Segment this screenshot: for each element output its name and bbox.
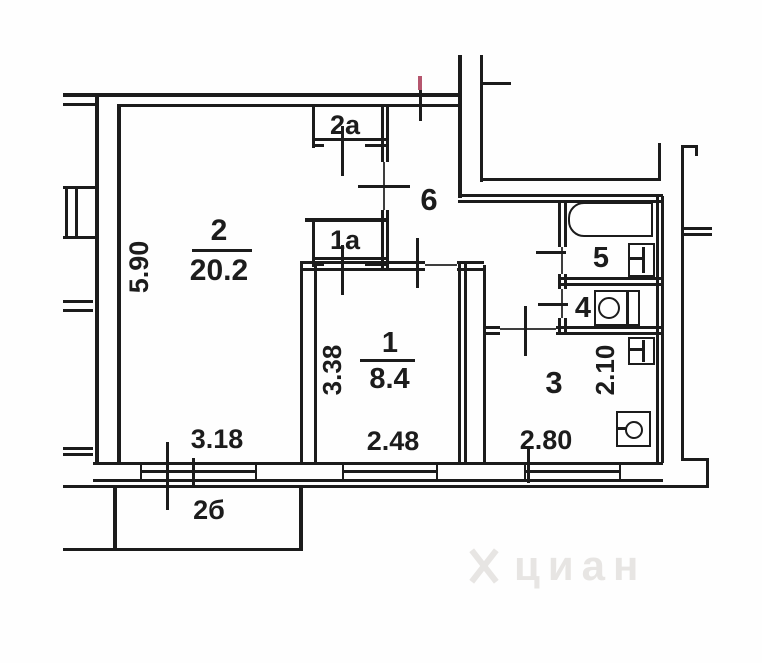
neighbor-wall <box>681 458 709 461</box>
room1-area: 8.4 <box>362 365 417 394</box>
cian-logo-icon <box>464 545 504 587</box>
dimension-tick <box>483 82 511 85</box>
sink-icon <box>630 257 642 260</box>
dim-room3-height: 2.10 <box>592 330 620 410</box>
area-divider <box>192 249 252 252</box>
window-symbol <box>436 462 438 482</box>
wall-room1-top <box>300 261 425 264</box>
facade-line <box>63 485 709 488</box>
room2a-number: 2а <box>320 112 370 139</box>
facade-tick <box>63 300 93 303</box>
facade-tick <box>63 309 93 312</box>
neighbor-wall <box>681 145 684 461</box>
dim-room3-width: 2.80 <box>511 427 581 454</box>
wall-top-inner <box>117 104 462 107</box>
area-divider <box>360 359 415 362</box>
dim-room1-height: 3.38 <box>319 330 347 410</box>
wall-room1-left <box>300 263 303 463</box>
door-tick <box>524 306 527 356</box>
room5-number: 5 <box>587 244 615 273</box>
sink-icon <box>642 340 645 362</box>
dimension-tick <box>192 458 195 488</box>
window-symbol <box>619 462 621 482</box>
entry-door-tick <box>419 88 422 121</box>
facade-tick <box>681 227 712 230</box>
closet-1a-wall <box>312 257 386 260</box>
wall-top-outer <box>63 93 462 97</box>
neighbor-wall <box>695 145 698 156</box>
wall-bath-left <box>558 200 561 247</box>
wall-bath-wc <box>558 283 663 286</box>
closet-2a-wall <box>365 144 386 147</box>
room2-number: 2 <box>195 216 243 246</box>
room1-number: 1 <box>372 329 408 358</box>
closet-2a-wall <box>312 107 315 148</box>
toilet-icon <box>626 292 629 324</box>
door-opening <box>425 264 457 266</box>
dimension-tick <box>166 442 169 510</box>
balcony-number: 2б <box>183 497 235 524</box>
door-tick <box>358 185 410 188</box>
wall-left-inner <box>117 104 121 463</box>
wall-hall <box>386 107 389 162</box>
door-tick <box>538 303 568 306</box>
stairwell-wall <box>483 178 661 181</box>
wall-kitchen-top <box>556 326 663 329</box>
window-symbol <box>524 470 621 473</box>
wall-room1-top <box>457 261 484 264</box>
wall-room1-top <box>300 268 425 271</box>
sink-icon <box>642 247 645 273</box>
stairwell-wall <box>658 143 661 181</box>
balcony-wall <box>299 488 303 551</box>
door-tick <box>416 238 419 288</box>
wall-top-stub <box>63 103 96 106</box>
door-tick <box>536 251 566 254</box>
watermark-text: циан <box>514 545 646 587</box>
entry-red-mark <box>418 76 422 90</box>
wall-room1-right <box>464 263 467 463</box>
left-window-symbol <box>75 189 78 236</box>
left-window-symbol <box>65 189 68 236</box>
wall-kitchen-top <box>483 326 500 329</box>
wall-bath-top <box>458 194 663 197</box>
wall-bath-left <box>564 318 567 334</box>
floor-plan: 2 20.2 5.90 3.18 2а 1а 6 1 8.4 3.38 2.48… <box>0 0 762 663</box>
window-symbol <box>140 462 142 482</box>
window-symbol <box>342 462 344 482</box>
wall-bath-left <box>558 318 561 334</box>
wall-left-outer <box>95 95 99 465</box>
wall-bath-wc <box>558 277 663 280</box>
wall-bottom-inner <box>93 479 663 482</box>
neighbor-wall <box>706 458 709 488</box>
sink-icon <box>630 348 642 351</box>
window-symbol <box>255 462 257 482</box>
room2-area: 20.2 <box>186 256 252 286</box>
stove-icon <box>625 421 643 439</box>
closet-2a-wall <box>312 144 324 147</box>
wall-room3-left <box>483 265 486 463</box>
bathtub-icon <box>568 202 653 237</box>
room1a-number: 1а <box>320 227 370 254</box>
left-window-symbol <box>63 236 95 239</box>
door-opening <box>500 328 556 330</box>
wall-right-outer <box>661 196 664 463</box>
dim-room2-width: 3.18 <box>180 426 254 453</box>
room6-number: 6 <box>411 184 447 215</box>
wall-hall <box>381 107 384 162</box>
window-symbol <box>342 470 438 473</box>
wall-room1-top <box>457 268 484 271</box>
window-symbol <box>140 470 257 473</box>
stairwell-wall <box>458 55 462 198</box>
closet-1a-wall <box>305 218 389 222</box>
facade-tick <box>63 447 93 450</box>
wall-room1-right <box>458 263 461 463</box>
facade-tick <box>681 233 712 236</box>
facade-tick <box>63 453 93 456</box>
stairwell-wall <box>480 55 483 182</box>
wall-right-inner <box>656 196 659 463</box>
room4-number: 4 <box>570 294 596 323</box>
balcony-wall <box>113 488 117 551</box>
toilet-icon <box>598 297 620 319</box>
balcony-wall <box>63 548 303 551</box>
window-symbol <box>524 462 526 482</box>
dim-room1-width: 2.48 <box>358 428 428 455</box>
dim-room2-height: 5.90 <box>126 227 154 307</box>
wall-bath-left <box>564 200 567 247</box>
wall-bottom-outer <box>93 462 663 465</box>
wall-kitchen-top <box>483 332 500 335</box>
room3-number: 3 <box>538 367 570 398</box>
watermark: циан <box>464 542 646 590</box>
